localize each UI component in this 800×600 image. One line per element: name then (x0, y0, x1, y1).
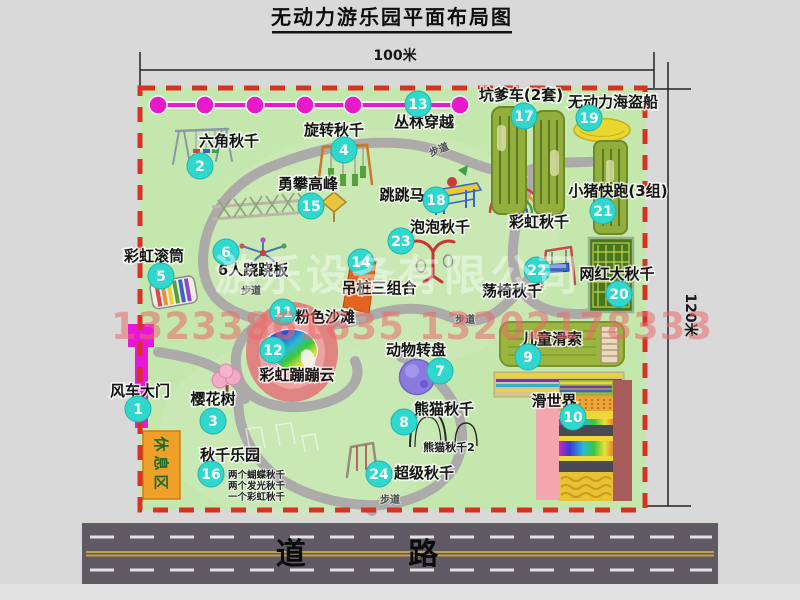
swing-park-note-1: 两个蝴蝶秋千 (228, 469, 286, 481)
item-24-badge: 24 (366, 461, 392, 487)
svg-text:9: 9 (523, 350, 533, 366)
road: 道 路 (82, 523, 718, 584)
item-23-label: 泡泡秋千 (410, 218, 470, 236)
item-18-label: 跳跳马 (379, 186, 424, 204)
swing-park-note-2: 两个发光秋千 (228, 480, 286, 492)
park-map-svg: 无动力游乐园平面布局图 100米 120米 步道 步道 步道 步道 步道 (0, 0, 800, 600)
svg-text:20: 20 (609, 287, 629, 303)
svg-text:2: 2 (195, 159, 205, 175)
watermark-phone: 13233861635 13202178333 (111, 305, 713, 348)
item-16-badge: 16 (198, 461, 224, 487)
page-title: 无动力游乐园平面布局图 (271, 5, 513, 29)
item-20-label: 网红大秋千 (579, 265, 654, 283)
item-3-label: 樱花树 (190, 390, 235, 408)
item-10-badge: 10 (560, 404, 586, 430)
item-17-badge: 17 (511, 103, 537, 129)
svg-text:4: 4 (339, 143, 349, 159)
item-19-badge: 19 (576, 105, 602, 131)
width-dimension-label: 100米 (373, 47, 417, 64)
background-bottom-strip (0, 584, 800, 600)
svg-text:7: 7 (435, 364, 445, 380)
svg-text:8: 8 (399, 415, 409, 431)
item-20-badge: 20 (606, 281, 632, 307)
title-underline (272, 31, 512, 34)
svg-text:23: 23 (391, 234, 410, 250)
item-5-badge: 5 (148, 263, 174, 289)
item-21-badge: 21 (590, 198, 616, 224)
item-7-badge: 7 (427, 358, 453, 384)
item-17-label: 坑爹车(2套) (479, 86, 563, 104)
item-12-label: 彩虹蹦蹦云 (258, 366, 334, 384)
item-8-badge: 8 (391, 409, 417, 435)
item-15-badge: 15 (298, 193, 324, 219)
road-label: 道 路 (276, 537, 484, 572)
item-15-label: 勇攀高峰 (278, 175, 339, 193)
item-1-badge: 1 (125, 396, 151, 422)
svg-text:18: 18 (426, 193, 445, 209)
park-layout-screenshot: 无动力游乐园平面布局图 100米 120米 步道 步道 步道 步道 步道 (0, 0, 800, 600)
svg-text:16: 16 (201, 467, 220, 483)
item-21-label: 小猪快跑(3组) (568, 182, 667, 200)
item-4-label: 旋转秋千 (303, 121, 364, 139)
svg-text:19: 19 (579, 111, 598, 127)
svg-text:3: 3 (208, 414, 218, 430)
item-5-label: 彩虹滚筒 (123, 247, 184, 265)
item-13-badge: 13 (405, 91, 431, 117)
item-4-badge: 4 (331, 137, 357, 163)
svg-text:21: 21 (593, 204, 612, 220)
path-label: 步道 (380, 493, 400, 506)
panda-swing-2-label: 熊猫秋千2 (423, 440, 475, 454)
svg-text:17: 17 (514, 109, 533, 125)
item-8-label: 熊猫秋千 (414, 400, 474, 418)
rest-area: 休息区 (143, 431, 180, 499)
item-24-label: 超级秋千 (393, 464, 454, 482)
item-18-badge: 18 (423, 187, 449, 213)
item-2-label: 六角秋千 (199, 132, 259, 150)
item-3-badge: 3 (200, 408, 226, 434)
rainbow-swing-label: 彩虹秋千 (508, 213, 569, 231)
svg-text:13: 13 (408, 97, 427, 113)
svg-text:24: 24 (369, 467, 389, 483)
svg-text:15: 15 (301, 199, 320, 215)
swing-park-note-3: 一个彩虹秋千 (228, 491, 286, 503)
svg-text:1: 1 (133, 402, 143, 418)
watermark-company: 游乐设备有限公司 (214, 251, 582, 300)
svg-text:5: 5 (156, 269, 166, 285)
item-2-badge: 2 (187, 153, 213, 179)
svg-text:10: 10 (563, 410, 583, 426)
rest-area-label: 休息区 (152, 435, 170, 493)
